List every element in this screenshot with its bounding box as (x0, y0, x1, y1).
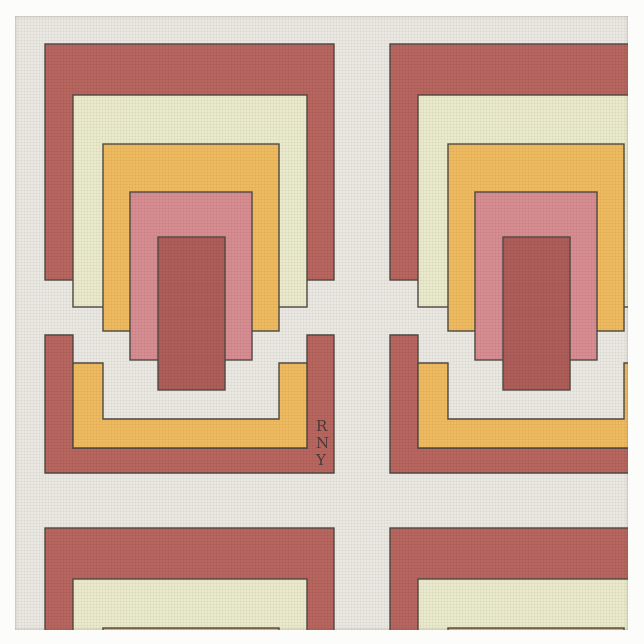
saffron-rect (103, 628, 279, 644)
fabric-swatch: RNYRNYRNYRNY (0, 0, 644, 644)
pattern-tile-3: RNY (45, 528, 334, 644)
saffron-rect (448, 628, 624, 644)
artist-signature-letter: N (316, 434, 329, 452)
center-brick-rect (503, 237, 570, 390)
artist-signature-letter: Y (315, 451, 327, 469)
artist-signature-letter: R (316, 417, 328, 435)
pattern-svg: RNYRNYRNYRNY (0, 0, 644, 644)
pattern-tile-4: RNY (390, 528, 644, 644)
center-brick-rect (158, 237, 225, 390)
